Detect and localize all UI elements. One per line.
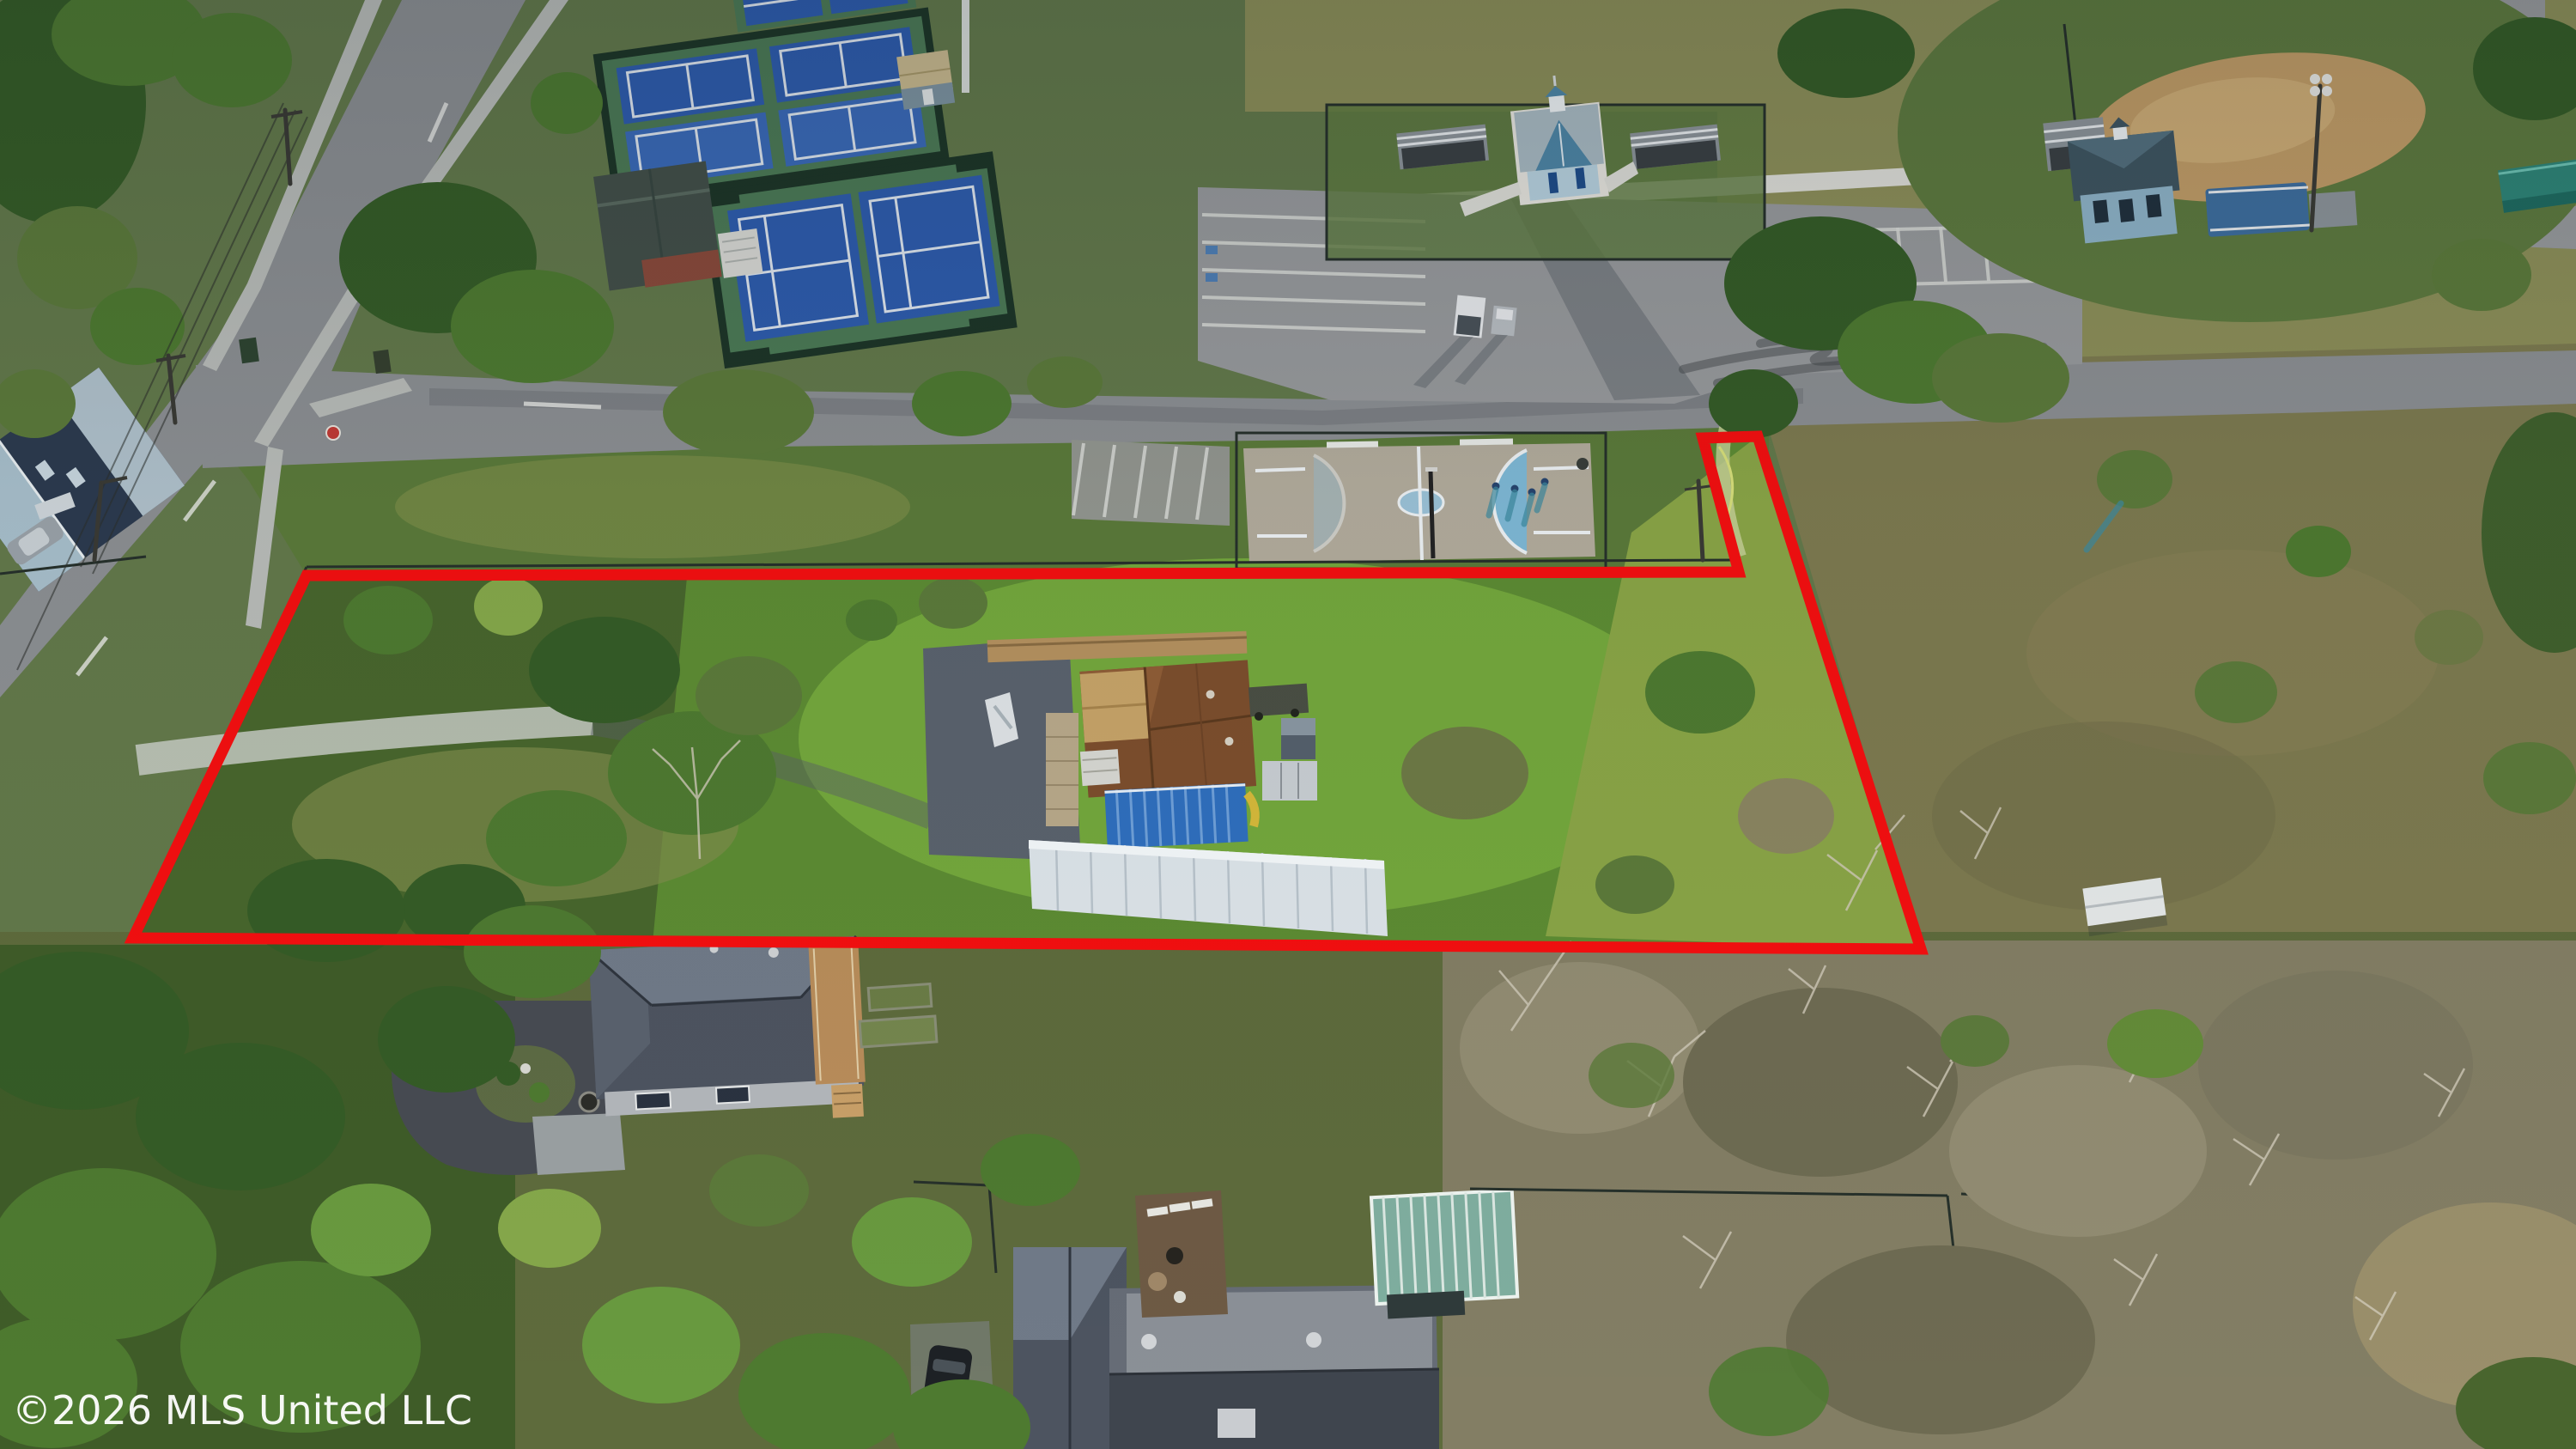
aerial-photo-canvas: ©2026 MLS United LLC (0, 0, 2576, 1449)
photo-vignette (0, 0, 2576, 1449)
aerial-photo: ©2026 MLS United LLC (0, 0, 2576, 1449)
watermark: ©2026 MLS United LLC (12, 1387, 472, 1434)
